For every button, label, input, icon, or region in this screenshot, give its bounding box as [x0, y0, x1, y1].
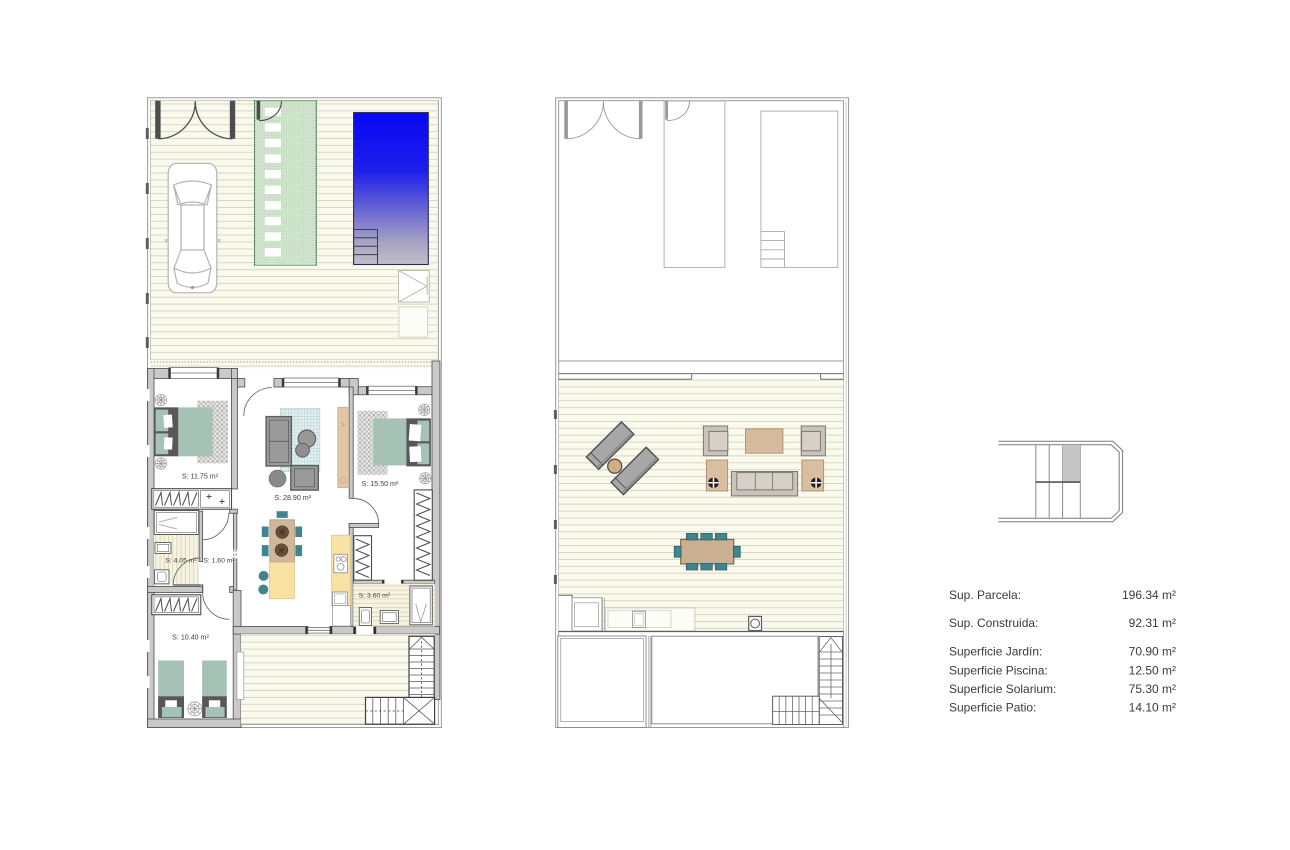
svg-text:Sup. Parcela:: Sup. Parcela:: [949, 588, 1021, 602]
svg-text:Superficie Jardín:: Superficie Jardín:: [949, 645, 1042, 659]
svg-text:70.90 m²: 70.90 m²: [1129, 645, 1176, 659]
svg-text:14.10 m²: 14.10 m²: [1129, 701, 1176, 715]
svg-text:S: 4.05 m²: S: 4.05 m²: [165, 557, 197, 564]
svg-text:12.50 m²: 12.50 m²: [1129, 663, 1176, 677]
svg-text:S: 3.60 m²: S: 3.60 m²: [359, 593, 391, 600]
svg-text:Superficie Solarium:: Superficie Solarium:: [949, 682, 1056, 696]
svg-text:S: 11.75 m²: S: 11.75 m²: [182, 473, 219, 481]
svg-text:92.31 m²: 92.31 m²: [1129, 616, 1176, 630]
svg-text:S: 28.90 m²: S: 28.90 m²: [274, 494, 311, 502]
svg-text:196.34 m²: 196.34 m²: [1122, 588, 1176, 602]
svg-text:S: 15.50 m²: S: 15.50 m²: [362, 480, 399, 488]
svg-text:Superficie Patio:: Superficie Patio:: [949, 701, 1036, 715]
svg-text:Superficie Piscina:: Superficie Piscina:: [949, 663, 1048, 677]
svg-text:75.30 m²: 75.30 m²: [1129, 682, 1176, 696]
svg-text:S: 1.60 m²: S: 1.60 m²: [203, 557, 235, 564]
svg-text:S: 10.40 m²: S: 10.40 m²: [172, 633, 209, 641]
svg-text:Sup. Construida:: Sup. Construida:: [949, 616, 1038, 630]
